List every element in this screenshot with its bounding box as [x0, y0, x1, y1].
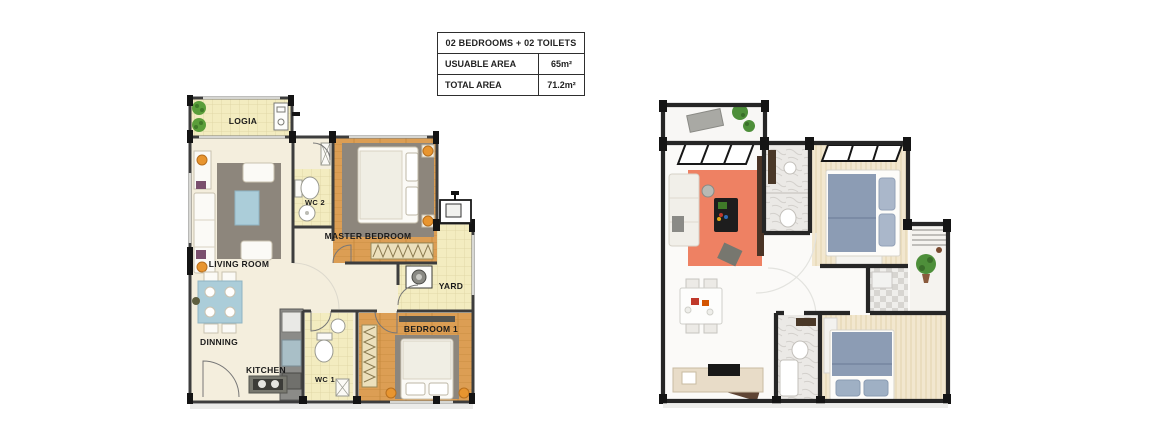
plant-icon: [743, 120, 755, 132]
tv-console: [399, 316, 455, 322]
ac-unit: [440, 191, 471, 223]
sink-icon: [331, 319, 345, 333]
usable-area-label: USUABLE AREA: [438, 54, 539, 74]
3d-floor-plan: [658, 98, 954, 412]
area-info-table: 02 BEDROOMS + 02 TOILETS USUABLE AREA 65…: [437, 32, 585, 96]
floor-plan-sheet: 02 BEDROOMS + 02 TOILETS USUABLE AREA 65…: [0, 0, 1170, 438]
ground-shadow: [190, 404, 473, 409]
ground-shadow: [663, 403, 948, 408]
living-room-furniture: [194, 151, 281, 273]
fridge: [282, 312, 301, 332]
plant-icon: [192, 101, 206, 115]
sink: [282, 340, 301, 366]
yard-fixtures: [406, 266, 432, 288]
bed: [828, 174, 876, 252]
bathtub: [780, 360, 798, 396]
wardrobe: [362, 325, 377, 387]
lamp-icon: [197, 262, 207, 272]
kitchen-3d: [673, 364, 763, 397]
label-dinning: DINNING: [200, 337, 238, 347]
pillow: [864, 380, 888, 396]
pillow: [406, 383, 425, 395]
cooktop: [708, 364, 740, 376]
label-kitchen: KITCHEN: [246, 365, 286, 375]
usable-area-value: 65m²: [539, 54, 584, 74]
label-wc2: WC 2: [305, 198, 325, 207]
toilet-icon: [792, 341, 808, 359]
toilet-icon: [301, 177, 319, 199]
label-living-room: LIVING ROOM: [209, 259, 269, 269]
total-area-value: 71.2m²: [539, 75, 584, 95]
pillow: [406, 187, 418, 215]
lamp-icon: [423, 216, 433, 226]
window-icon: [678, 143, 754, 164]
label-yard: YARD: [439, 281, 464, 291]
coffee-table: [235, 191, 259, 225]
usable-area-row: USUABLE AREA 65m²: [438, 54, 584, 75]
2d-floor-plan: LOGIA LIVING ROOM WC 2 MASTER BEDROOM YA…: [185, 95, 480, 430]
total-area-label: TOTAL AREA: [438, 75, 539, 95]
toilet-icon: [315, 340, 333, 362]
armchair: [241, 241, 272, 260]
sink-icon: [682, 372, 696, 384]
label-wc1: WC 1: [315, 375, 335, 384]
total-area-row: TOTAL AREA 71.2m²: [438, 75, 584, 95]
label-master-bedroom: MASTER BEDROOM: [325, 231, 412, 241]
bedroom1-3d-furniture: [824, 318, 894, 400]
dining-table: [198, 281, 242, 323]
pillow: [879, 178, 895, 210]
flower-decor: [192, 297, 200, 305]
toilet-icon: [780, 209, 796, 227]
label-logia: LOGIA: [229, 116, 257, 126]
lamp-icon: [197, 155, 207, 165]
lamp-icon: [459, 388, 469, 398]
vanity: [796, 318, 816, 326]
armchair: [243, 163, 274, 182]
utility-cabinet: [872, 272, 892, 288]
sofa: [669, 174, 699, 246]
pillow: [836, 380, 860, 396]
decor: [196, 181, 206, 189]
plant-icon: [916, 254, 936, 274]
bed: [832, 332, 892, 376]
label-bedroom1: BEDROOM 1: [404, 324, 458, 334]
pillow: [879, 214, 895, 246]
pendant-lamp-icon: [702, 185, 714, 197]
sink-icon: [784, 162, 796, 174]
lamp-icon: [386, 388, 396, 398]
plant-icon: [192, 118, 206, 132]
vanity: [768, 150, 776, 184]
window-icon: [822, 145, 902, 161]
pillow: [429, 383, 448, 395]
lamp-icon: [423, 146, 433, 156]
plan-title: 02 BEDROOMS + 02 TOILETS: [438, 33, 584, 54]
pillow: [406, 153, 418, 181]
dining-table: [680, 288, 722, 324]
wardrobe: [371, 243, 433, 259]
